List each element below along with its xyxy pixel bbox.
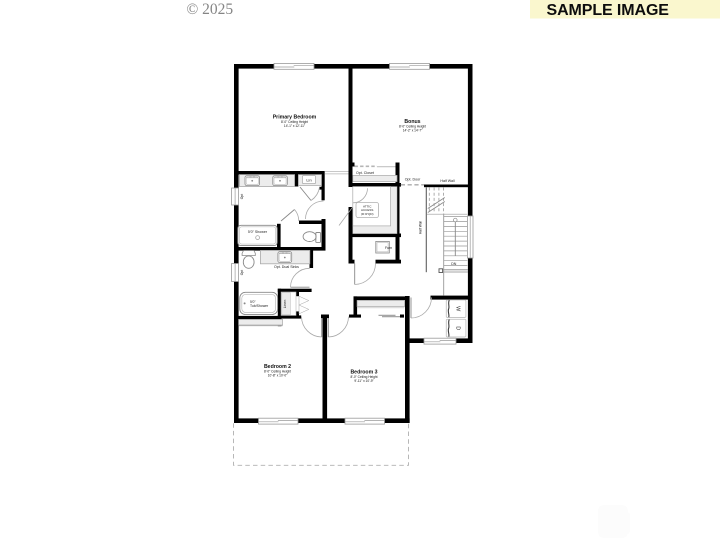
svg-text:DN: DN bbox=[451, 262, 457, 266]
svg-text:Linen: Linen bbox=[283, 300, 287, 309]
svg-text:Half Wall: Half Wall bbox=[419, 221, 423, 234]
svg-text:Furn: Furn bbox=[385, 246, 392, 250]
svg-text:SAMPLE IMAGE: SAMPLE IMAGE bbox=[547, 2, 670, 19]
svg-text:Tub/Shower: Tub/Shower bbox=[250, 304, 269, 308]
svg-text:14'-2" x 14'-7": 14'-2" x 14'-7" bbox=[403, 128, 423, 132]
svg-text:Half Wall: Half Wall bbox=[440, 179, 454, 183]
svg-text:Opt. Door: Opt. Door bbox=[405, 177, 421, 181]
svg-text:Opt. Dual Sinks: Opt. Dual Sinks bbox=[274, 265, 299, 269]
svg-text:5'0" Shower: 5'0" Shower bbox=[248, 230, 268, 234]
svg-text:D: D bbox=[455, 326, 461, 330]
svg-text:Opt. Closet: Opt. Closet bbox=[356, 171, 374, 175]
svg-text:Lin: Lin bbox=[306, 177, 311, 182]
svg-text:10'-8" x 10'-0": 10'-8" x 10'-0" bbox=[268, 374, 288, 378]
svg-text:Opt: Opt bbox=[240, 270, 244, 276]
svg-text:Opt: Opt bbox=[240, 194, 244, 200]
svg-text:(IF R'QD): (IF R'QD) bbox=[361, 212, 374, 216]
svg-text:W: W bbox=[455, 306, 461, 312]
svg-text:14'-1" x 12'-11": 14'-1" x 12'-11" bbox=[284, 124, 305, 128]
svg-text:9'-11" x 10'-9": 9'-11" x 10'-9" bbox=[354, 379, 373, 383]
svg-text:© 2025: © 2025 bbox=[187, 1, 234, 18]
